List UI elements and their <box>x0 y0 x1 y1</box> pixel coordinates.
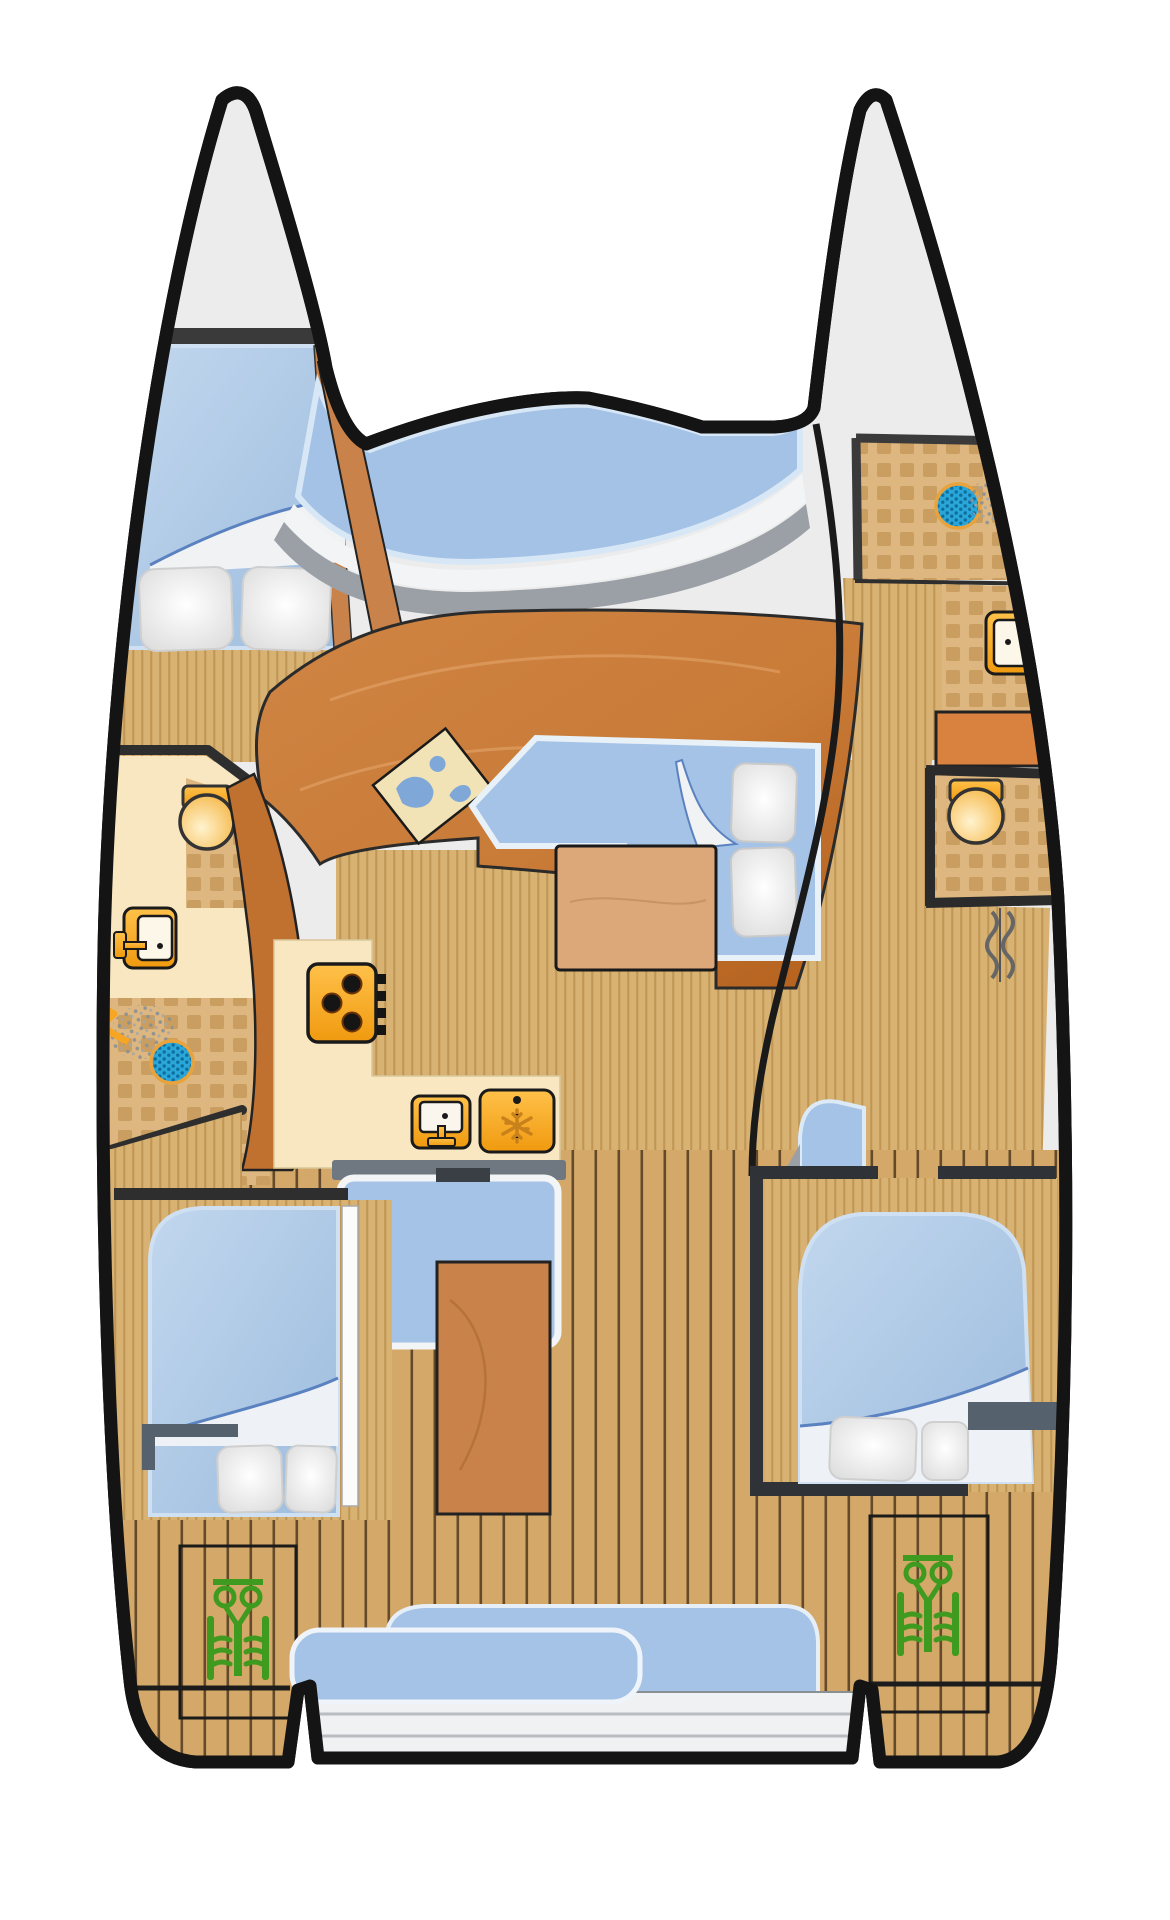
toilet-icon <box>180 786 234 849</box>
pillow <box>922 1422 968 1480</box>
cabin-fwd-wall <box>114 1188 348 1200</box>
shower-drain-icon <box>151 1041 193 1083</box>
cabin-slate-wall <box>142 1424 238 1437</box>
wall <box>856 438 1014 441</box>
pillow <box>730 847 797 937</box>
pillow <box>829 1417 917 1482</box>
cabin-fwd-wall <box>938 1166 1056 1179</box>
pillow <box>285 1445 337 1513</box>
pillow <box>731 763 798 843</box>
cockpit-table <box>437 1262 550 1514</box>
wall <box>856 438 858 580</box>
stbd-shower-room <box>855 438 1056 584</box>
dining-table <box>556 846 716 970</box>
toilet-icon <box>949 780 1003 843</box>
stove-icon <box>308 964 386 1042</box>
pillow <box>241 566 332 651</box>
stbd-aft-cabin <box>750 1166 1060 1496</box>
cabin-slate-shelf <box>968 1402 1060 1430</box>
cabin-side-wall <box>750 1166 763 1496</box>
washbasin-icon <box>114 908 176 968</box>
companionway-notch <box>436 1168 490 1182</box>
pillow <box>217 1445 283 1513</box>
cabin-slate-wall <box>142 1424 155 1470</box>
aft-bench <box>292 1630 640 1702</box>
catamaran-floor-plan <box>0 0 1170 1920</box>
cabin-aft-wall <box>750 1482 968 1496</box>
refrigerator-icon <box>480 1090 554 1152</box>
pillow <box>139 566 234 651</box>
floor-plan-canvas <box>0 0 1170 1920</box>
cabin-door-panel <box>342 1206 358 1506</box>
cabin-fwd-wall <box>750 1166 878 1179</box>
stbd-curtain-floor <box>932 905 1050 1176</box>
galley-sink-icon <box>412 1096 470 1148</box>
